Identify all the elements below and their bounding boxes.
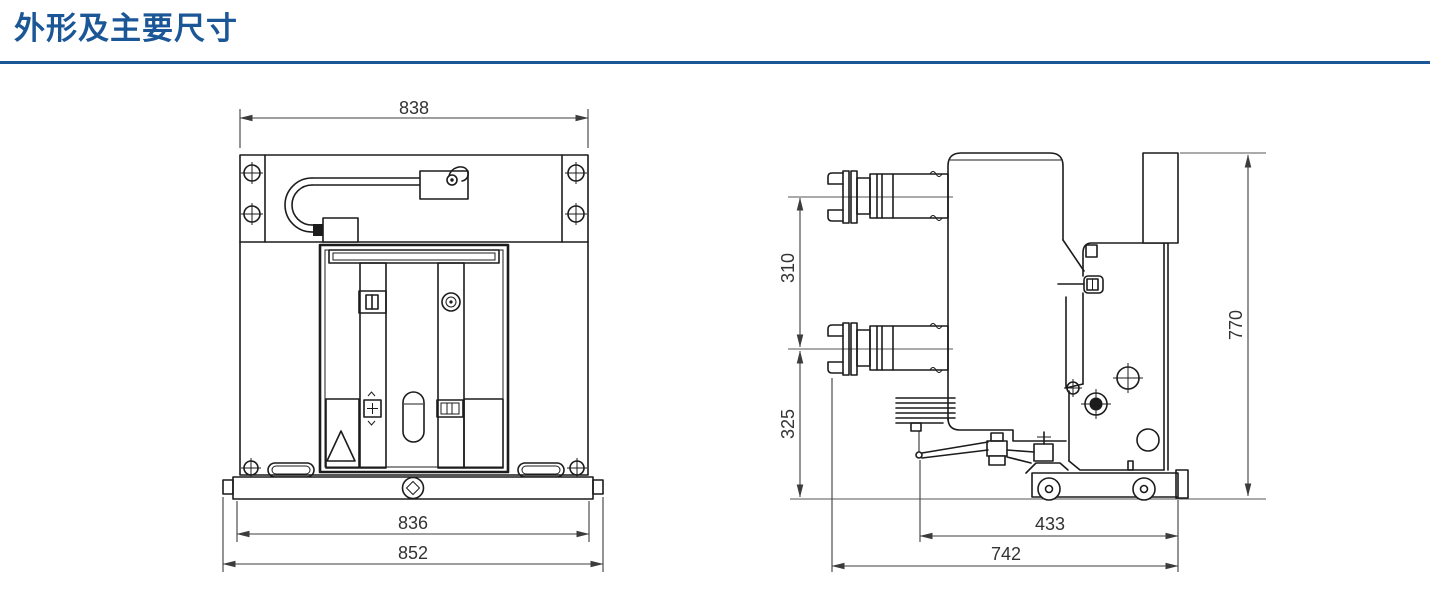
- wheel-icon: [1133, 478, 1155, 500]
- counter-window: [437, 400, 463, 417]
- dim-lower-height-value: 325: [778, 409, 798, 439]
- dim-front-top-width: 838: [240, 98, 588, 148]
- shaft-target-icon: [1081, 389, 1111, 419]
- round-hole: [1137, 429, 1159, 451]
- dim-base-width-value: 836: [398, 513, 428, 533]
- page-header: 外形及主要尺寸: [0, 0, 1430, 46]
- outline-dimensions-drawing: 838: [0, 70, 1430, 604]
- indicator-button: [359, 291, 386, 313]
- dim-side-pole-spacing: 310: [778, 198, 800, 347]
- front-pole-frame: [320, 245, 508, 472]
- mechanism-bolts: [987, 432, 1068, 473]
- interlock-cable: [285, 167, 468, 242]
- warning-label-panel: [326, 399, 359, 468]
- dim-base-length-value: 433: [1035, 514, 1065, 534]
- dim-side-base-length: 433: [920, 460, 1178, 572]
- mounting-hole-icon: [241, 162, 263, 184]
- side-trolley: [1032, 470, 1188, 500]
- dim-pole-spacing-value: 310: [778, 253, 798, 283]
- wheel-icon: [1038, 478, 1060, 500]
- hole-crosshair-icon: [1113, 363, 1143, 393]
- dim-front-base-width: 836: [237, 501, 589, 542]
- side-view: 310 325: [778, 153, 1266, 572]
- dim-top-width-value: 838: [399, 98, 429, 118]
- dim-side-overall-height: 770: [1226, 155, 1248, 496]
- warning-triangle-icon: [327, 431, 355, 461]
- front-base-bar: [223, 477, 603, 499]
- side-fins: [896, 398, 955, 431]
- page-title: 外形及主要尺寸: [14, 12, 1430, 46]
- dim-overall-width-value: 852: [398, 543, 428, 563]
- side-rear-frame: [1058, 243, 1168, 470]
- latch-detail: [1084, 276, 1103, 293]
- mounting-hole-icon: [565, 203, 587, 225]
- nameplate-panel: [464, 399, 503, 468]
- mounting-hole-icon: [241, 203, 263, 225]
- dim-overall-height-value: 770: [1226, 310, 1246, 340]
- dim-side-lower-height: 325: [778, 351, 800, 497]
- title-underline: [0, 61, 1430, 64]
- operation-knob: [442, 293, 460, 311]
- handle-slot: [403, 392, 424, 442]
- side-pole-body: [948, 153, 1084, 441]
- hanger-bar: [1143, 153, 1178, 243]
- linkage-pivot: [916, 431, 988, 458]
- dim-side-overall-depth: 742: [832, 378, 1178, 572]
- dim-overall-depth-value: 742: [991, 544, 1021, 564]
- spring-state-symbol: [364, 392, 381, 425]
- mounting-hole-icon: [565, 162, 587, 184]
- front-view: 838: [223, 98, 603, 572]
